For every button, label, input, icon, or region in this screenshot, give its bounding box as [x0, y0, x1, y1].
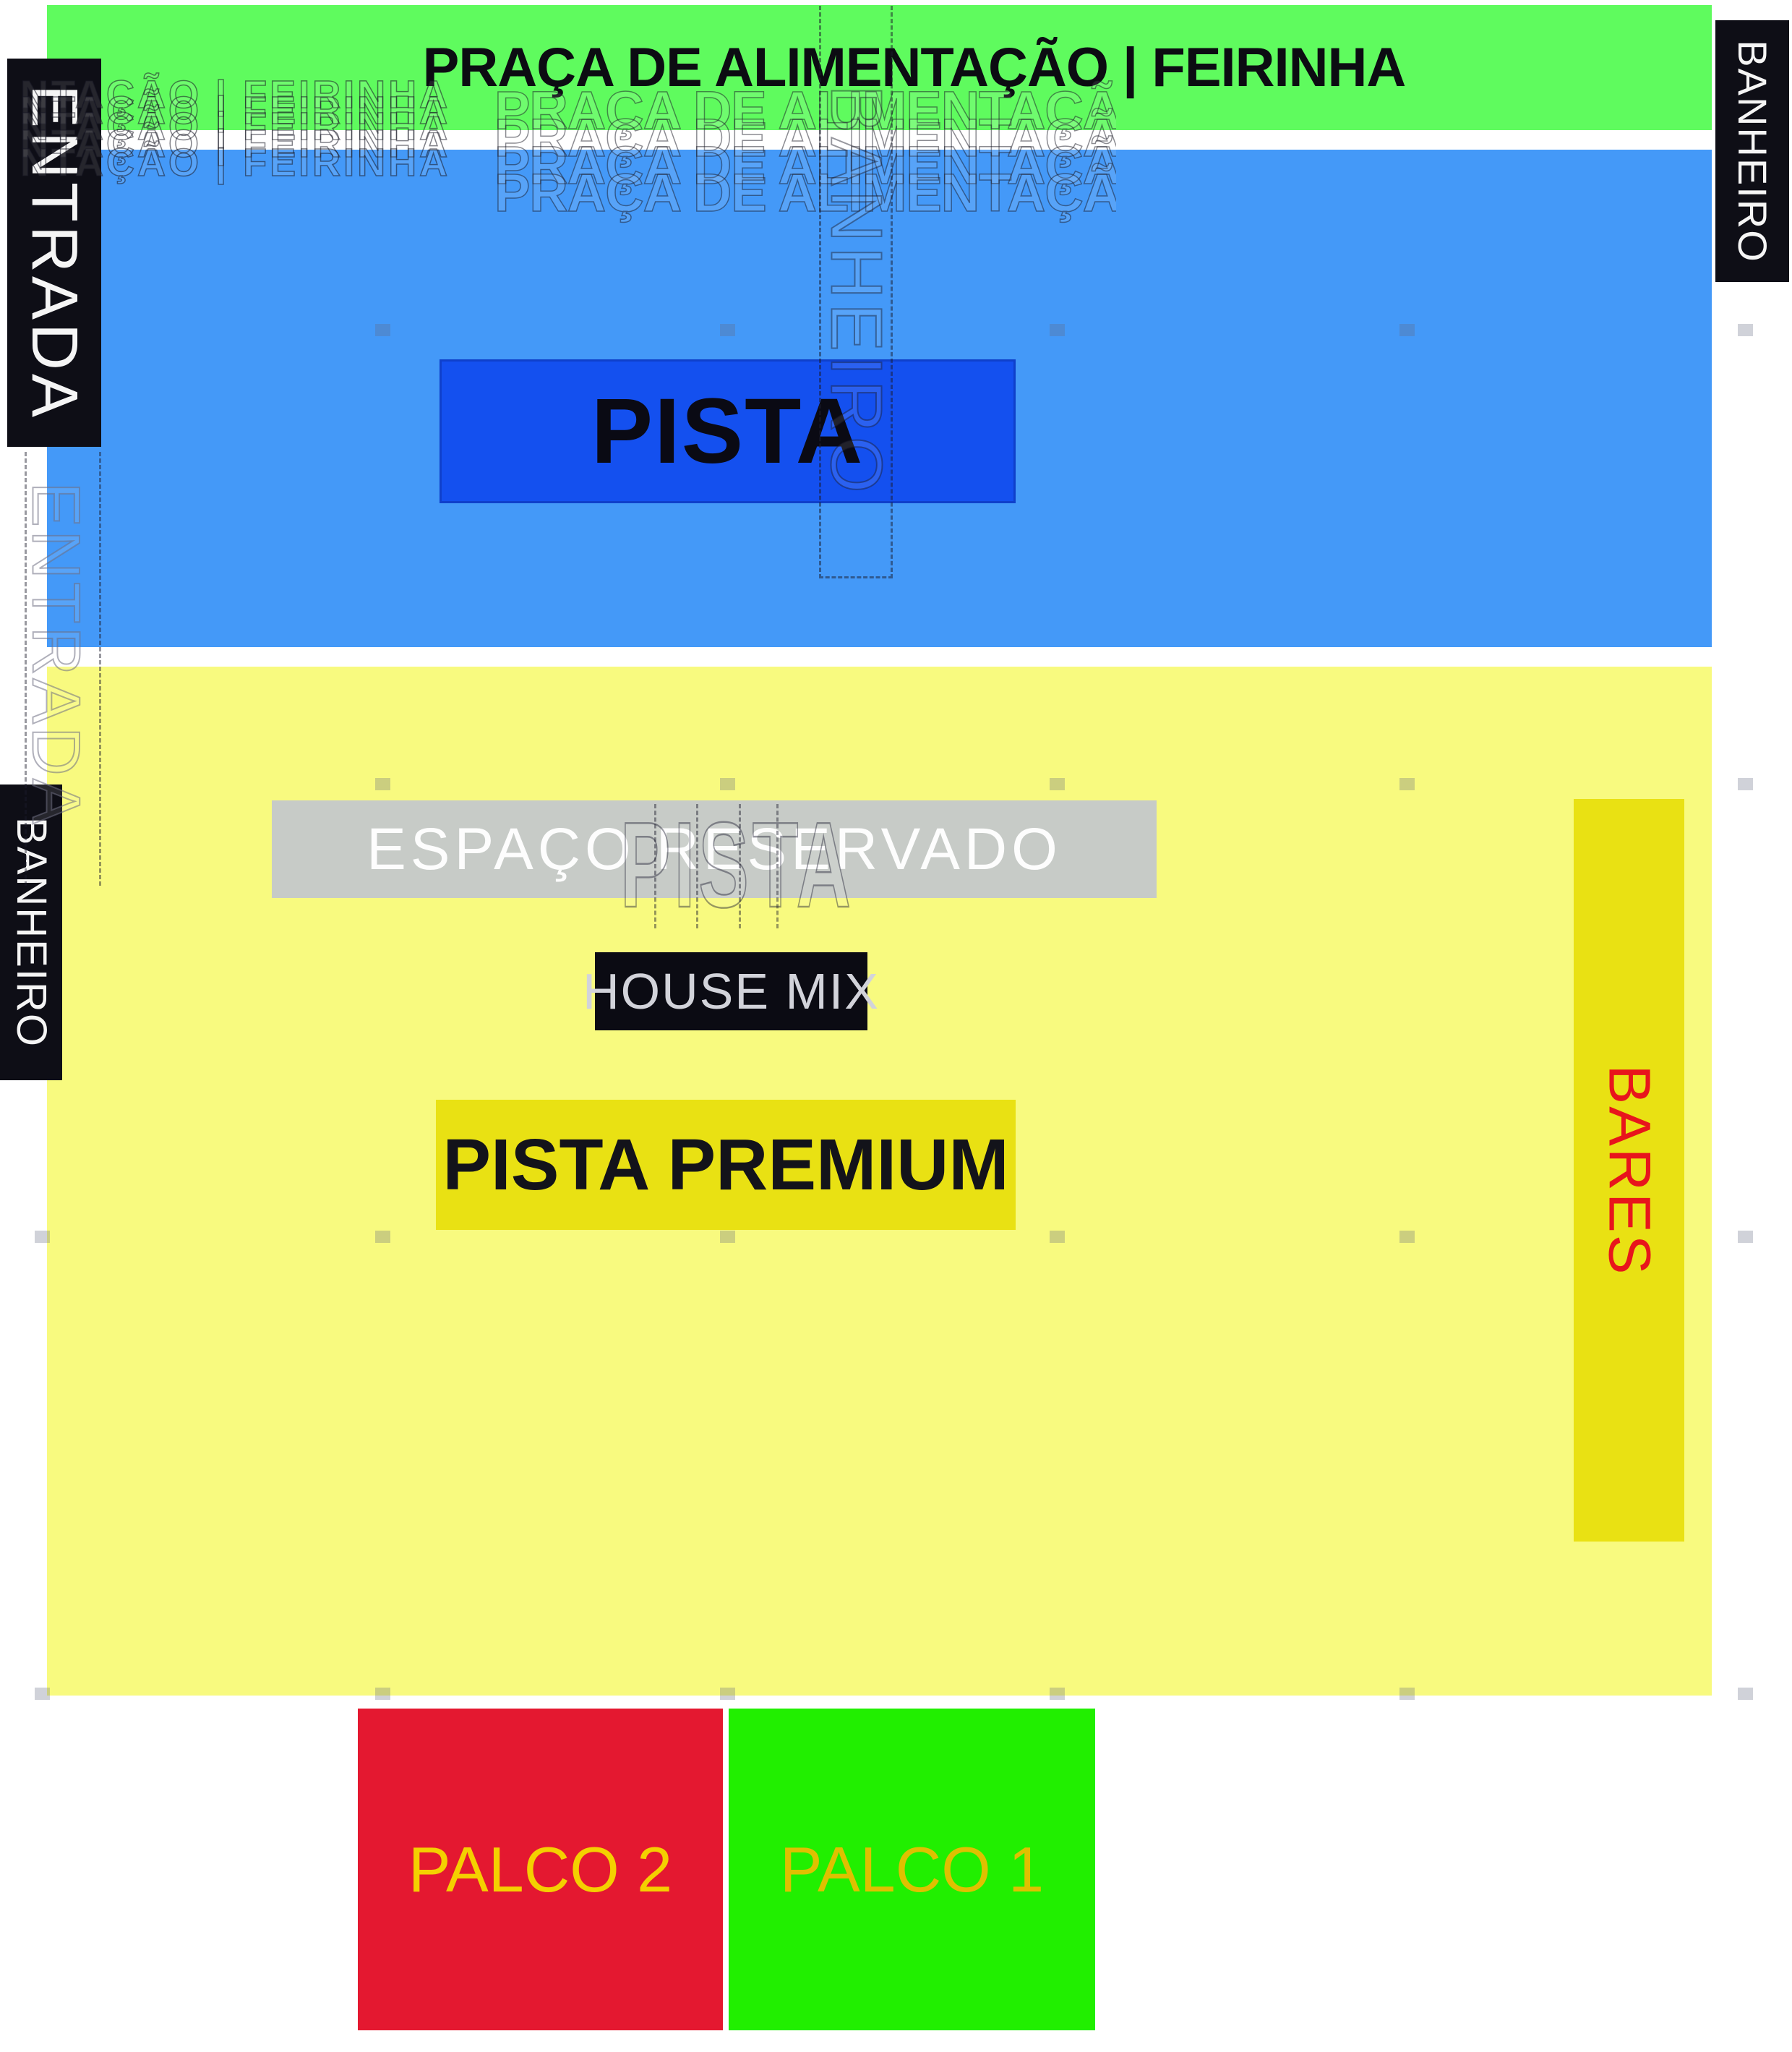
- banheiro-top-right-label: BANHEIRO: [1729, 40, 1776, 263]
- pista-premium-label: PISTA PREMIUM: [442, 1124, 1008, 1207]
- registration-mark: [1399, 1688, 1415, 1700]
- espaco-reservado-label: ESPAÇO RESERVADO: [366, 816, 1062, 884]
- ghost-text-rows-title: PRAÇA DE ALIMENTAÇÃO PRAÇA DE ALIMENTAÇÃ…: [494, 80, 1116, 239]
- registration-mark: [720, 778, 735, 790]
- espaco-reservado-zone: ESPAÇO RESERVADO: [272, 800, 1157, 898]
- ghost-row: PRAÇA DE ALIMENTAÇÃO: [494, 107, 1116, 168]
- ghost-dashed-column: BANHEIRO: [819, 6, 893, 578]
- registration-mark: [1738, 778, 1753, 790]
- venue-map-poster: PRAÇA DE ALIMENTAÇÃO | FEIRINHA PISTA ES…: [0, 0, 1792, 2052]
- registration-mark: [375, 1231, 390, 1243]
- registration-mark: [1738, 324, 1753, 336]
- registration-mark: [1399, 778, 1415, 790]
- ghost-row: PRAÇA DE ALIMENTAÇÃO: [494, 80, 1116, 141]
- bares-label: BARES: [1595, 1064, 1663, 1276]
- ghost-row: PRAÇA DE ALIMENTAÇÃO: [494, 162, 1116, 223]
- palco-1-zone: PALCO 1: [729, 1709, 1095, 2030]
- ghost-row: NTAÇÃO | FEIRINHA: [20, 88, 450, 133]
- ghost-vertical-text: ENTRADA: [17, 482, 95, 826]
- registration-mark: [35, 1688, 50, 1700]
- banheiro-top-right-zone: BANHEIRO: [1715, 20, 1789, 282]
- ghost-entrada-column: ENTRADA: [13, 441, 100, 868]
- registration-mark: [1738, 1231, 1753, 1243]
- registration-mark: [375, 778, 390, 790]
- registration-mark: [1050, 1688, 1065, 1700]
- registration-mark: [375, 324, 390, 336]
- pista-zone: PISTA: [440, 359, 1016, 503]
- registration-mark: [720, 1688, 735, 1700]
- ghost-vertical-text: BANHEIRO: [815, 85, 898, 497]
- registration-mark: [1050, 1231, 1065, 1243]
- pista-premium-zone: PISTA PREMIUM: [436, 1100, 1016, 1230]
- ghost-row: NTAÇÃO | FEIRINHA: [20, 140, 450, 185]
- ghost-row: NTAÇÃO | FEIRINHA: [20, 121, 450, 166]
- registration-mark: [375, 1688, 390, 1700]
- registration-mark: [1050, 324, 1065, 336]
- bares-zone: BARES: [1574, 799, 1684, 1542]
- registration-mark: [35, 1231, 50, 1243]
- palco-1-label: PALCO 1: [780, 1833, 1044, 1907]
- palco-2-label: PALCO 2: [408, 1833, 672, 1907]
- registration-mark: [1399, 1231, 1415, 1243]
- registration-mark: [1399, 324, 1415, 336]
- house-mix-label: HOUSE MIX: [583, 962, 880, 1020]
- ghost-row: PRAÇA DE ALIMENTAÇÃO: [494, 134, 1116, 196]
- house-mix-zone: HOUSE MIX: [595, 952, 867, 1030]
- ghost-row: NTAÇÃO | FEIRINHA: [20, 72, 450, 117]
- registration-mark: [1738, 1688, 1753, 1700]
- ghost-row: NTAÇÃO | FEIRINHA: [20, 104, 450, 149]
- registration-mark: [720, 1231, 735, 1243]
- registration-mark: [720, 324, 735, 336]
- registration-mark: [1050, 778, 1065, 790]
- ghost-text-rows-left: NTAÇÃO | FEIRINHA NTAÇÃO | FEIRINHA NTAÇ…: [20, 72, 454, 202]
- palco-2-zone: PALCO 2: [358, 1709, 723, 2030]
